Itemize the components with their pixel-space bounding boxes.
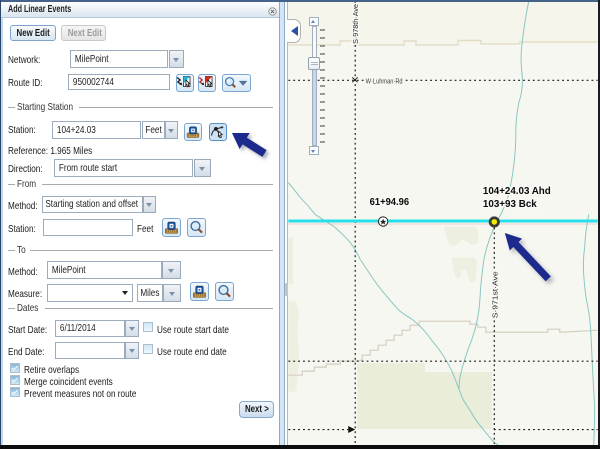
svg-text:61+94.96: 61+94.96: [370, 197, 410, 208]
svg-text:103+93 Bck: 103+93 Bck: [483, 199, 537, 210]
svg-text:S·978th·Ave: S·978th·Ave: [352, 4, 360, 44]
svg-text:S·971st·Ave: S·971st·Ave: [490, 271, 499, 318]
svg-text:W·Luhman·Rd: W·Luhman·Rd: [366, 77, 403, 85]
svg-text:104+24.03 Ahd: 104+24.03 Ahd: [483, 186, 551, 197]
